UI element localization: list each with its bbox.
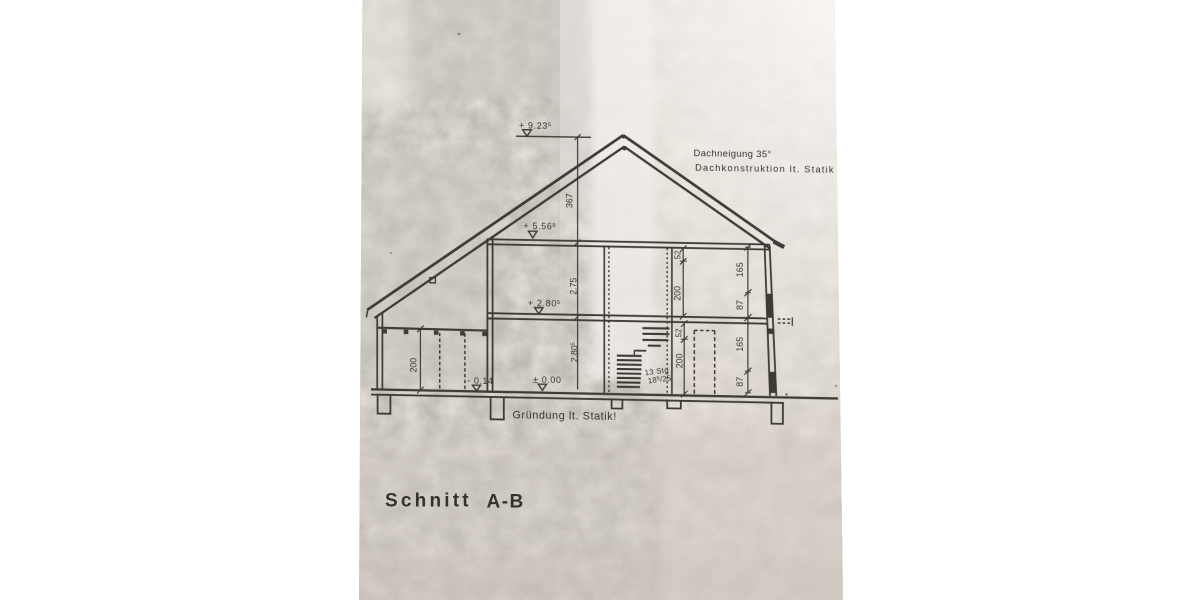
svg-text:52: 52 — [673, 250, 682, 260]
svg-text:52: 52 — [674, 328, 683, 338]
svg-text:200: 200 — [672, 286, 682, 301]
svg-text:+ 2.805: + 2.805 — [528, 298, 561, 309]
svg-text:+ 5.565: + 5.565 — [524, 221, 557, 232]
svg-text:200: 200 — [675, 353, 685, 368]
svg-text:87: 87 — [735, 300, 745, 310]
svg-text:Gründung lt. Statik!: Gründung lt. Statik! — [512, 409, 616, 423]
svg-text:87: 87 — [735, 377, 745, 387]
svg-text:Dachneigung 35°: Dachneigung 35° — [693, 147, 771, 159]
svg-text:A-B: A-B — [487, 492, 525, 513]
svg-text:Dachkonstruktion lt. Statik: Dachkonstruktion lt. Statik — [695, 162, 835, 175]
svg-text:165: 165 — [735, 337, 745, 352]
svg-text:165: 165 — [735, 262, 745, 277]
svg-text:Schnitt: Schnitt — [385, 491, 472, 512]
svg-text:2.75: 2.75 — [568, 278, 578, 295]
svg-text:200: 200 — [408, 358, 418, 373]
svg-text:367: 367 — [565, 193, 575, 208]
